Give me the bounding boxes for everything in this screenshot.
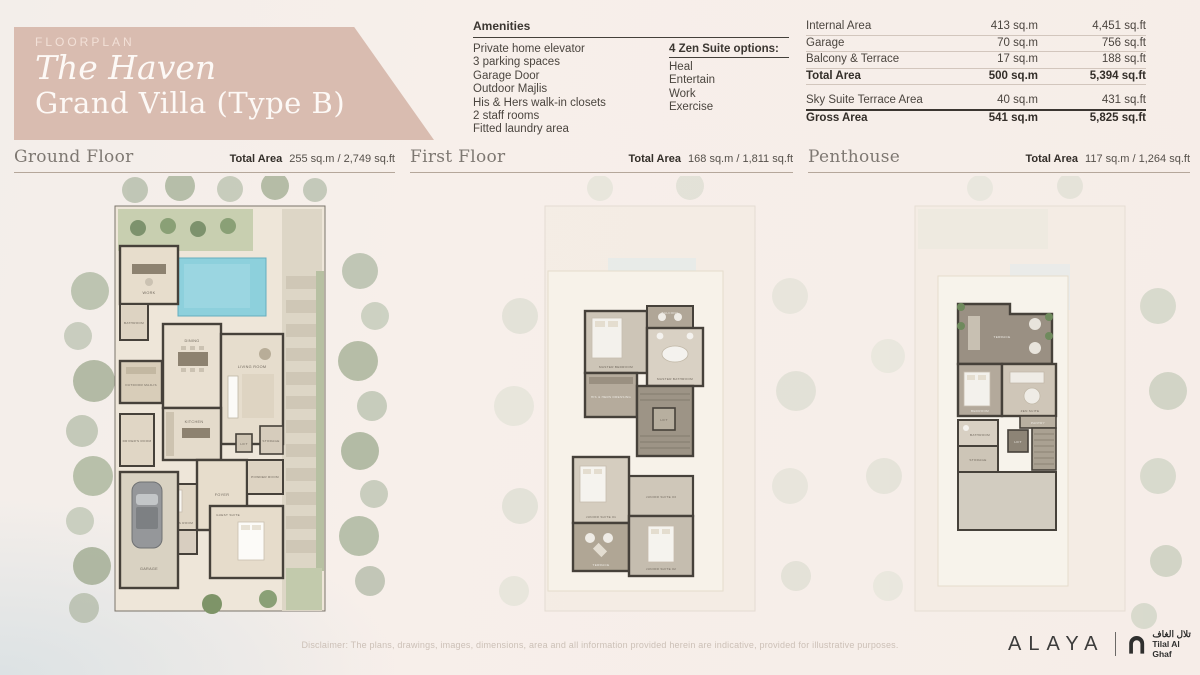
- floor-header: Penthouse Total Area117 sq.m / 1,264 sq.…: [808, 147, 1190, 173]
- first-floor-plan: MASTER BEDROOM BALCONY MASTER BATHROOM H…: [490, 176, 820, 634]
- table-row-total: Total Area 500 sq.m 5,394 sq.ft: [806, 69, 1146, 86]
- total-area-label: Total Area: [1025, 153, 1078, 165]
- area-sqm: 541 sq.m: [956, 112, 1038, 125]
- area-sqm: 413 sq.m: [956, 20, 1038, 33]
- area-summary-table: Internal Area 413 sq.m 4,451 sq.ft Garag…: [806, 19, 1146, 126]
- penthouse-drawing: TERRACE BEDROOM ZEN SUITE PANTRY BATHROO…: [860, 176, 1190, 634]
- zen-option: Heal: [669, 61, 789, 74]
- alaya-logo: ALAYA: [1008, 633, 1105, 656]
- armchair: [259, 348, 271, 360]
- room-label: MASTER BEDROOM: [599, 365, 633, 369]
- unit-type-title: Grand Villa (Type B): [35, 87, 434, 120]
- room-label: LIFT: [240, 442, 248, 446]
- room-label: GUEST SUITE: [216, 513, 240, 517]
- room-label: LIVING ROOM: [238, 365, 267, 369]
- area-label: Internal Area: [806, 20, 956, 33]
- room-label: TERRACE: [994, 335, 1011, 339]
- floor-title: Ground Floor: [14, 147, 134, 167]
- floor-total-area: Total Area117 sq.m / 1,264 sq.ft: [1025, 153, 1190, 165]
- room-label: HIS & HERS DRESSING: [591, 395, 632, 399]
- room-label: KITCHEN: [185, 420, 204, 424]
- amenities-panel: Amenities Private home elevator 3 parkin…: [473, 19, 789, 137]
- rear-garden: [286, 568, 322, 610]
- area-label: Balcony & Terrace: [806, 53, 956, 66]
- bed-icon: [592, 318, 622, 358]
- dining-table: [178, 352, 208, 366]
- pool-highlight: [184, 264, 250, 308]
- ground-floor-drawing: WORK BATHROOM OUTDOOR MAJLIS DRIVER'S RO…: [60, 176, 390, 634]
- room-label: LIFT: [660, 418, 668, 422]
- sofa: [228, 376, 238, 418]
- total-area-value: 255 sq.m / 2,749 sq.ft: [289, 153, 395, 165]
- amenity-item: His & Hers walk-in closets: [473, 97, 669, 110]
- area-label: Total Area: [806, 70, 956, 83]
- area-sqft: 4,451 sq.ft: [1038, 20, 1146, 33]
- room-label: STORAGE: [969, 458, 986, 462]
- total-area-label: Total Area: [628, 153, 681, 165]
- section-penthouse: Penthouse Total Area117 sq.m / 1,264 sq.…: [808, 147, 1190, 173]
- room-label: BATHROOM: [124, 321, 144, 325]
- bathtub: [662, 346, 688, 362]
- zen-options-heading: 4 Zen Suite options:: [669, 43, 789, 58]
- eyebrow-label: FLOORPLAN: [35, 35, 434, 49]
- first-floor-drawing: MASTER BEDROOM BALCONY MASTER BATHROOM H…: [490, 176, 820, 634]
- lounge-chair: [1029, 318, 1041, 330]
- kitchen-counter: [166, 412, 174, 456]
- room-work: [120, 246, 178, 304]
- zen-option: Entertain: [669, 74, 789, 87]
- room-label: TERRACE: [593, 563, 610, 567]
- bed-icon: [648, 526, 674, 562]
- floor-total-area: Total Area168 sq.m / 1,811 sq.ft: [628, 153, 793, 165]
- table-row: Internal Area 413 sq.m 4,451 sq.ft: [806, 19, 1146, 36]
- room-label: ZEN SUITE: [1021, 409, 1040, 413]
- lower-roof-terrace: [958, 472, 1056, 530]
- bed-icon: [964, 372, 990, 406]
- room-label: LIFT: [1014, 440, 1022, 444]
- brand-divider: [1115, 632, 1116, 656]
- total-area-value: 117 sq.m / 1,264 sq.ft: [1085, 153, 1190, 165]
- room-label: BEDROOM: [971, 409, 989, 413]
- sink: [687, 333, 694, 340]
- zen-option: Work: [669, 88, 789, 101]
- area-label: Gross Area: [806, 112, 956, 125]
- amenities-list: Private home elevator 3 parking spaces G…: [473, 43, 669, 137]
- majlis-seating: [126, 367, 156, 374]
- partner-arabic-name: تلال الغاف: [1152, 629, 1200, 639]
- area-sqm: 70 sq.m: [956, 37, 1038, 50]
- lounge-chair: [1029, 342, 1041, 354]
- brand-lockup: ALAYA تلال الغاف Tilal Al Ghaf: [1008, 629, 1200, 659]
- amenities-columns: Private home elevator 3 parking spaces G…: [473, 43, 789, 137]
- floor-total-area: Total Area255 sq.m / 2,749 sq.ft: [230, 153, 395, 165]
- room-label: JUNIOR SUITE 02: [646, 567, 676, 571]
- area-sqft: 5,825 sq.ft: [1038, 112, 1146, 125]
- table-row: Sky Suite Terrace Area 40 sq.m 431 sq.ft: [806, 93, 1146, 111]
- room-label: FOYER: [215, 493, 230, 497]
- right-trees: [1131, 288, 1187, 629]
- section-ground-floor: Ground Floor Total Area255 sq.m / 2,749 …: [14, 147, 395, 173]
- area-sqft: 431 sq.ft: [1038, 94, 1146, 107]
- rug: [242, 374, 274, 418]
- amenity-item: Private home elevator: [473, 43, 669, 56]
- floor-header: First Floor Total Area168 sq.m / 1,811 s…: [410, 147, 793, 173]
- chair: [145, 278, 153, 286]
- room-label: MASTER BATHROOM: [657, 377, 693, 381]
- bed-pillow: [241, 525, 250, 530]
- sink: [963, 425, 969, 431]
- car-icon: [132, 482, 162, 548]
- tilal-al-ghaf-lockup: تلال الغاف Tilal Al Ghaf: [1126, 629, 1200, 659]
- room-label: STORAGE: [262, 439, 279, 443]
- area-label: Garage: [806, 37, 956, 50]
- room-balcony: [647, 306, 693, 328]
- partner-text: تلال الغاف Tilal Al Ghaf: [1152, 629, 1200, 659]
- total-area-value: 168 sq.m / 1,811 sq.ft: [688, 153, 793, 165]
- area-sqm: 40 sq.m: [956, 94, 1038, 107]
- room-label: GARAGE: [140, 567, 158, 571]
- table-row: Garage 70 sq.m 756 sq.ft: [806, 36, 1146, 53]
- wardrobe: [589, 377, 633, 384]
- area-label: Sky Suite Terrace Area: [806, 94, 956, 107]
- disclaimer-text: Disclaimer: The plans, drawings, images,…: [250, 640, 950, 650]
- amenity-item: Outdoor Majlis: [473, 83, 669, 96]
- room-label: OUTDOOR MAJLIS: [125, 383, 157, 387]
- daybed: [1010, 372, 1044, 383]
- tilal-al-ghaf-arch-icon: [1126, 632, 1147, 656]
- table-row: Balcony & Terrace 17 sq.m 188 sq.ft: [806, 52, 1146, 69]
- room-label: BATHROOM: [970, 433, 990, 437]
- area-sqm: 500 sq.m: [956, 70, 1038, 83]
- zen-option: Exercise: [669, 101, 789, 114]
- room-label: BALCONY: [662, 311, 679, 315]
- area-sqm: 17 sq.m: [956, 53, 1038, 66]
- floor-title: First Floor: [410, 147, 505, 167]
- room-label: DINING: [184, 339, 199, 343]
- floor-title: Penthouse: [808, 147, 900, 167]
- terrace-table: [968, 316, 980, 350]
- room-label: PANTRY: [1031, 421, 1045, 425]
- area-sqft: 5,394 sq.ft: [1038, 70, 1146, 83]
- bed-icon: [580, 466, 606, 502]
- terrace-chair: [603, 533, 613, 543]
- section-first-floor: First Floor Total Area168 sq.m / 1,811 s…: [410, 147, 793, 173]
- amenity-item: Garage Door: [473, 70, 669, 83]
- area-sqft: 188 sq.ft: [1038, 53, 1146, 66]
- amenity-item: Fitted laundry area: [473, 123, 669, 136]
- title-banner: FLOORPLAN The Haven Grand Villa (Type B): [14, 27, 434, 140]
- amenities-heading: Amenities: [473, 19, 789, 38]
- zen-suite-options: 4 Zen Suite options: Heal Entertain Work…: [669, 43, 789, 137]
- total-area-label: Total Area: [230, 153, 283, 165]
- round-chair: [1024, 388, 1040, 404]
- room-label: JUNIOR SUITE 01: [586, 515, 616, 519]
- room-label: POWDER ROOM: [251, 475, 279, 479]
- room-label: DRIVER'S ROOM: [123, 439, 152, 443]
- amenity-item: 2 staff rooms: [473, 110, 669, 123]
- ground-floor-plan: WORK BATHROOM OUTDOOR MAJLIS DRIVER'S RO…: [60, 176, 390, 634]
- area-sqft: 756 sq.ft: [1038, 37, 1146, 50]
- sink: [657, 333, 664, 340]
- side-green-strip: [316, 271, 324, 571]
- table-row-gross: Gross Area 541 sq.m 5,825 sq.ft: [806, 111, 1146, 127]
- desk: [132, 264, 166, 274]
- room-label: JUNIOR SUITE 03: [646, 495, 676, 499]
- kitchen-island: [182, 428, 210, 438]
- floor-header: Ground Floor Total Area255 sq.m / 2,749 …: [14, 147, 395, 173]
- project-name: The Haven: [35, 49, 434, 87]
- penthouse-plan: TERRACE BEDROOM ZEN SUITE PANTRY BATHROO…: [860, 176, 1190, 634]
- bed-pillow: [252, 525, 261, 530]
- partner-english-name: Tilal Al Ghaf: [1152, 639, 1200, 659]
- amenity-item: 3 parking spaces: [473, 56, 669, 69]
- terrace-chair: [585, 533, 595, 543]
- room-label: WORK: [142, 291, 155, 295]
